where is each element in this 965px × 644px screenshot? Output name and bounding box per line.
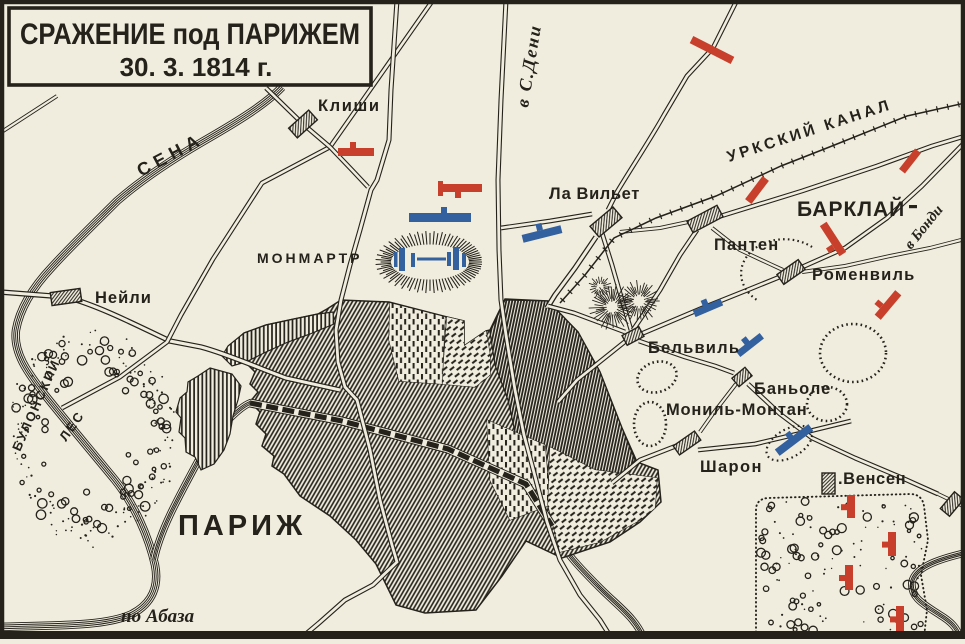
svg-text:СРАЖЕНИЕ под ПАРИЖЕМ: СРАЖЕНИЕ под ПАРИЖЕМ (20, 18, 360, 51)
svg-text:Клиши: Клиши (318, 97, 381, 115)
svg-text:ПАРИЖ: ПАРИЖ (178, 510, 306, 542)
svg-text:.Венсен: .Венсен (838, 470, 906, 488)
svg-text:Роменвиль: Роменвиль (812, 266, 916, 284)
svg-text:Бельвиль: Бельвиль (648, 339, 740, 357)
svg-text:Баньоле: Баньоле (754, 380, 831, 398)
svg-text:по Абаза: по Абаза (121, 606, 195, 627)
svg-text:Нейли: Нейли (95, 289, 152, 307)
svg-text:БАРКЛАЙ: БАРКЛАЙ (797, 197, 905, 221)
svg-text:Шарон: Шарон (700, 458, 763, 476)
svg-text:Ла Вильет: Ла Вильет (549, 185, 640, 203)
svg-text:Пантен: Пантен (714, 236, 779, 254)
svg-text:МОНМАРТР: МОНМАРТР (257, 250, 362, 266)
svg-text:30. 3. 1814 г.: 30. 3. 1814 г. (120, 52, 273, 82)
svg-text:Мониль-Монтан: Мониль-Монтан (666, 401, 807, 419)
